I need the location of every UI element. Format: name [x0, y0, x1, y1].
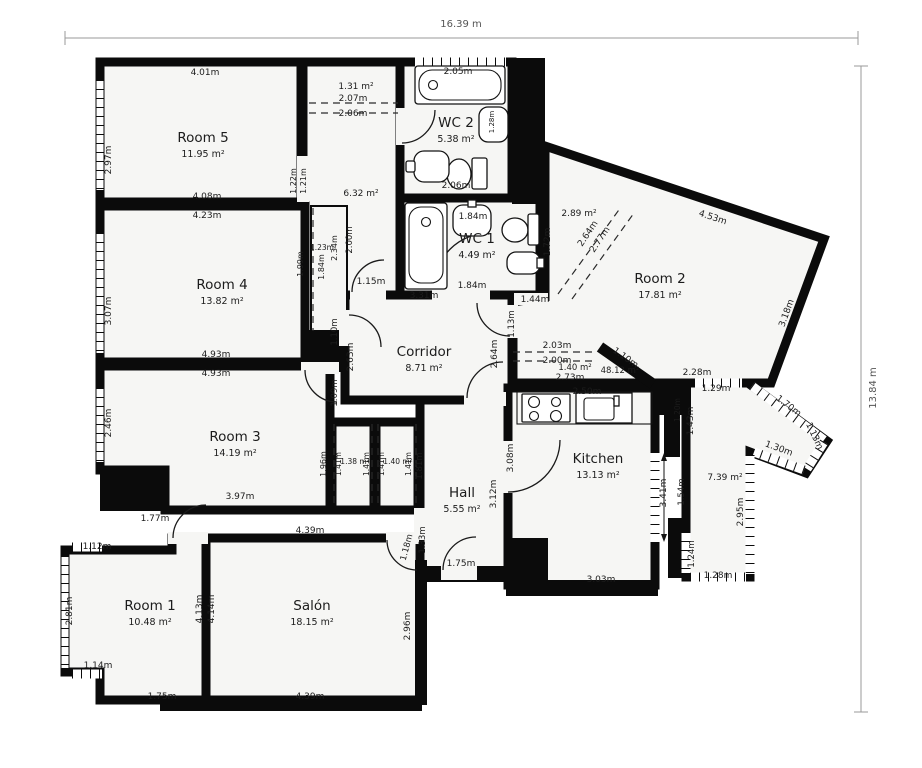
- dim-label-81: 4.39m: [296, 692, 325, 702]
- room-area-room5: 11.95 m²: [181, 149, 224, 160]
- dim-label-82: 2.96m: [403, 612, 413, 641]
- dim-label-80: 4.39m: [296, 526, 325, 536]
- dim-label-8: 2.06m: [442, 181, 471, 191]
- dim-label-48: 1.43m: [686, 407, 696, 436]
- dim-label-50: 3.41m: [659, 479, 669, 508]
- room-area-salon: 18.15 m²: [290, 617, 333, 628]
- room-name-wc2: WC 2: [438, 115, 474, 131]
- dim-label-3: 4.23m: [193, 211, 222, 221]
- dim-label-2: 4.08m: [193, 192, 222, 202]
- dim-label-24: 4.93m: [202, 369, 231, 379]
- bidet-wc1: [507, 252, 540, 274]
- bathtub-wc1: [405, 203, 447, 289]
- dim-label-21: 1.72m: [543, 228, 553, 257]
- sink-wc2-left: [414, 151, 449, 182]
- dim-label-25: 3.31m: [410, 291, 439, 301]
- dim-label-1: 2.97m: [104, 146, 114, 175]
- dim-label-59: 3.03m: [587, 575, 616, 585]
- dim-label-27: 2.64m: [490, 340, 500, 369]
- dim-label-55: 7.39 m²: [707, 473, 743, 483]
- dim-label-0: 4.01m: [191, 68, 220, 78]
- dim-label-22: 3.07m: [104, 297, 114, 326]
- window-room3-left: [96, 388, 104, 462]
- dim-label-79: 4.14m: [207, 595, 217, 624]
- room-area-wc1: 4.49 m²: [458, 250, 495, 261]
- room-area-wc2: 5.38 m²: [437, 134, 474, 145]
- dim-label-34: 2.89 m²: [561, 209, 597, 219]
- dim-label-56: 2.50m: [573, 387, 602, 397]
- dim-label-76: 1.14m: [84, 661, 113, 671]
- dim-label-10: 1.22m: [289, 168, 298, 194]
- dim-label-52: 2.95m: [736, 498, 746, 527]
- dim-label-78: 4.13m: [195, 595, 205, 624]
- room-area-kitchen: 13.13 m²: [576, 470, 619, 481]
- dim-label-69: 1.81m: [415, 452, 425, 479]
- room-name-room1: Room 1: [124, 598, 175, 614]
- dim-label-68: 1.41m: [404, 452, 413, 476]
- dim-label-5: 2.07m: [339, 94, 368, 104]
- dim-label-65: 1.41m: [362, 452, 371, 476]
- dim-label-7: 2.05m: [444, 67, 473, 77]
- room-area-room3: 14.19 m²: [213, 448, 256, 459]
- dim-label-39: 1.40 m²: [558, 363, 591, 373]
- dim-label-31: 1.44m: [521, 295, 550, 305]
- dim-label-13: 1.99m: [296, 251, 305, 277]
- room-name-kitchen: Kitchen: [573, 451, 624, 467]
- dim-label-26: 2.63m: [346, 343, 356, 372]
- plan-height-label: 13.84 m: [868, 367, 879, 409]
- dim-label-30: 1.13m: [507, 310, 517, 337]
- dim-label-53: 1.24m: [687, 540, 697, 567]
- room-name-room3: Room 3: [209, 429, 260, 445]
- dim-label-20: 1.84m: [458, 281, 487, 291]
- dim-label-16: 2.34m: [330, 235, 339, 261]
- dim-label-70: 1.75m: [447, 559, 476, 569]
- dim-label-54: 1.28m: [704, 571, 733, 581]
- dim-label-18: 1.15m: [357, 277, 386, 287]
- window-room5-left: [96, 80, 104, 190]
- dim-label-12: 6.32 m²: [343, 189, 379, 199]
- room-area-room2: 17.81 m²: [638, 290, 681, 301]
- room-name-room4: Room 4: [196, 277, 247, 293]
- dim-label-37: 2.03m: [543, 341, 572, 351]
- dim-label-28: 1.10m: [330, 318, 340, 345]
- room-area-corridor: 8.71 m²: [405, 363, 442, 374]
- dim-label-49: 1.20m: [673, 398, 682, 422]
- dim-label-19: 1.84m: [459, 212, 488, 222]
- stove: [522, 394, 570, 422]
- dim-label-40: 2.73m: [556, 373, 585, 383]
- room-name-wc1: WC 1: [459, 231, 495, 247]
- dim-label-17: 2.00m: [345, 226, 355, 253]
- dim-label-23: 4.93m: [202, 350, 231, 360]
- dim-label-44: 1.29m: [702, 384, 731, 394]
- floorplan-page: 16.39 m 13.84 m: [0, 0, 922, 768]
- dim-label-43: 2.28m: [683, 368, 712, 378]
- dim-label-29: 1.09m: [330, 379, 340, 406]
- room-area-hall: 5.55 m²: [443, 504, 480, 515]
- dim-label-9: 1.28m: [488, 111, 496, 134]
- dim-label-74: 1.12m: [83, 542, 112, 552]
- dim-label-57: 3.08m: [506, 444, 516, 473]
- room-area-room1: 10.48 m²: [128, 617, 171, 628]
- plan-width-label: 16.39 m: [440, 19, 482, 30]
- dim-label-75: 2.81m: [65, 597, 75, 626]
- dim-label-51: 1.54m: [677, 478, 687, 505]
- room-name-corridor: Corridor: [397, 344, 452, 360]
- dim-label-71: 1.33m: [418, 526, 428, 553]
- toilet-wc1: [502, 218, 528, 242]
- room-name-room5: Room 5: [177, 130, 228, 146]
- room-name-hall: Hall: [449, 485, 475, 501]
- room-name-room2: Room 2: [634, 271, 685, 287]
- room-area-room4: 13.82 m²: [200, 296, 243, 307]
- dim-label-61: 3.97m: [226, 492, 255, 502]
- dim-label-60: 2.46m: [104, 409, 114, 438]
- room-name-salon: Salón: [293, 598, 330, 614]
- floorplan-svg: 16.39 m 13.84 m: [0, 0, 922, 768]
- dim-label-62: 1.96m: [319, 451, 328, 477]
- dim-label-4: 1.31 m²: [338, 82, 374, 92]
- dim-label-58: 3.12m: [489, 480, 499, 509]
- dim-label-15: 1.84m: [317, 254, 326, 280]
- dim-label-73: 1.77m: [141, 514, 170, 524]
- dim-label-6: 2.06m: [339, 109, 368, 119]
- dim-label-11: 1.21m: [299, 168, 308, 194]
- dim-label-77: 1.75m: [148, 692, 177, 702]
- window-room4-left: [96, 233, 104, 353]
